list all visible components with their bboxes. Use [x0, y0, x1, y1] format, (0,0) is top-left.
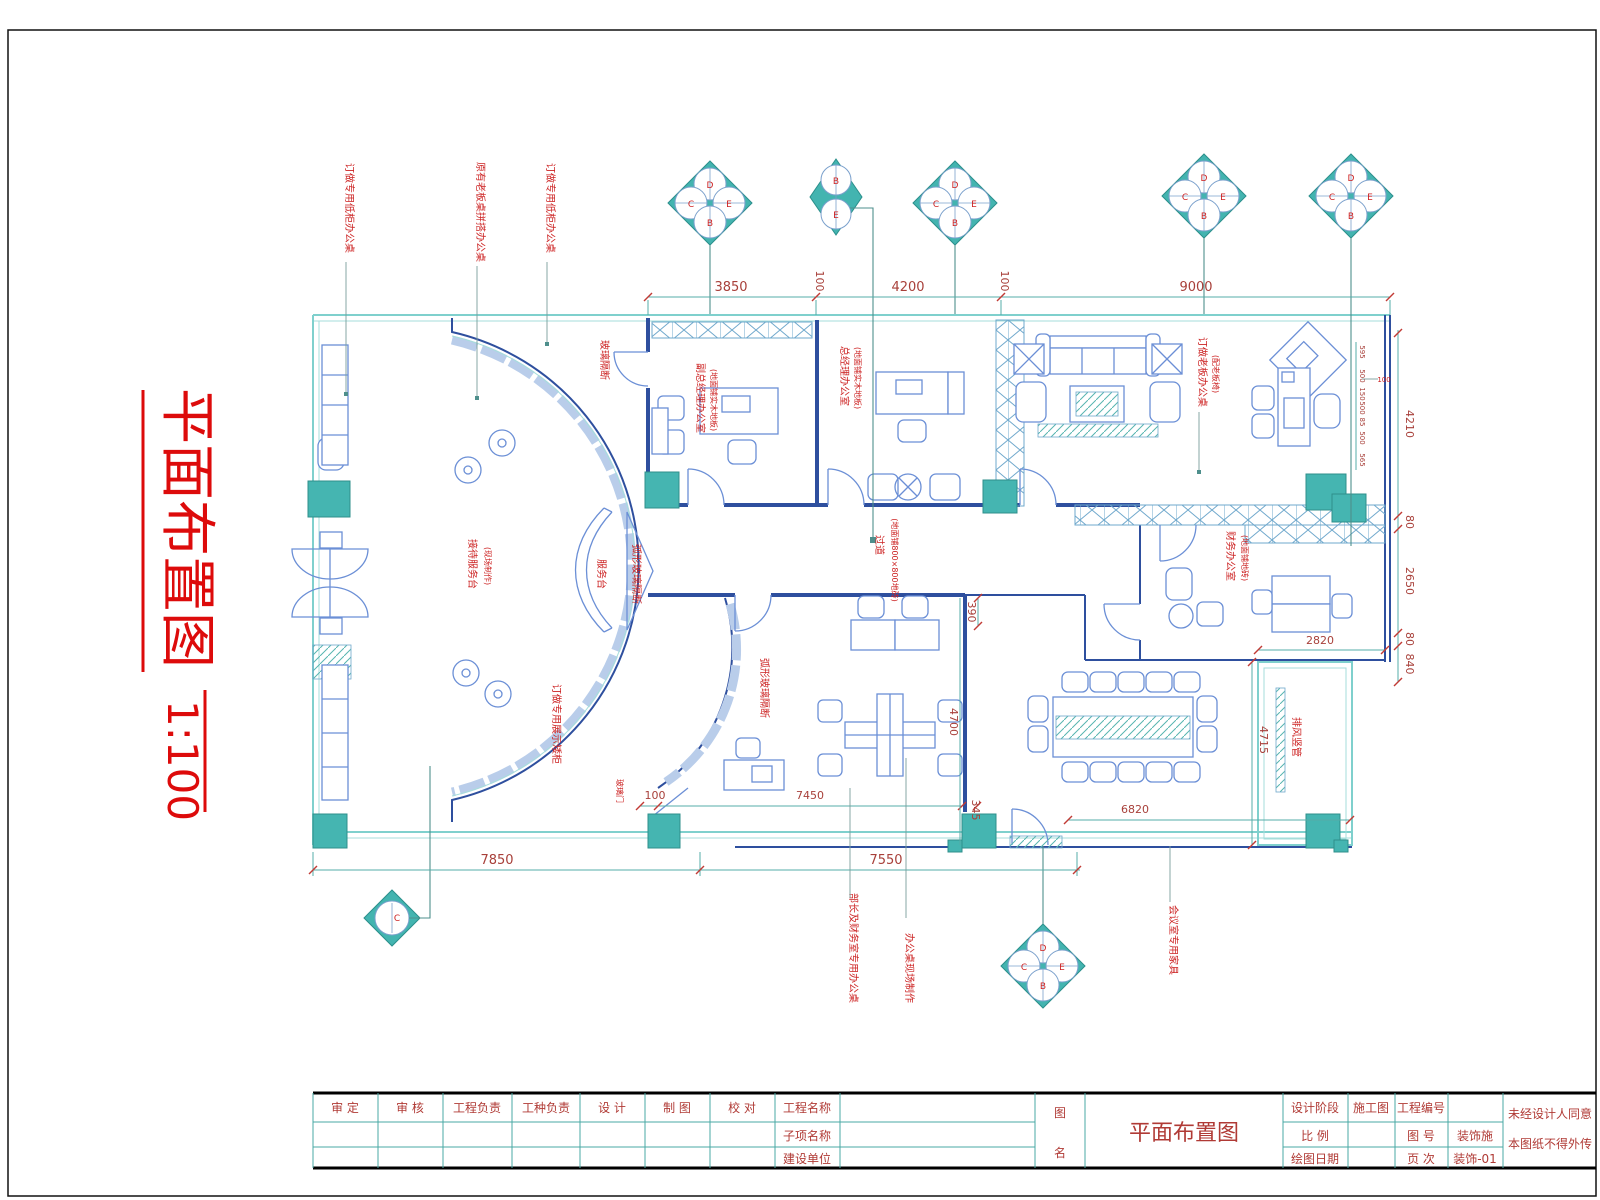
dim-label: 80 — [1403, 515, 1416, 529]
marker-4: D C E B — [1162, 154, 1246, 238]
dim-label: 9000 — [1179, 280, 1212, 295]
titleblock-cell: 装饰-01 — [1453, 1152, 1497, 1166]
dim-label: 80 — [1403, 632, 1416, 646]
marker-letter: C — [394, 914, 400, 924]
annotation: 弧形玻璃隔断 — [630, 544, 643, 604]
floor-plan-svg: 平面布置图 1:100 — [0, 0, 1600, 1200]
dim-label: 4700 — [947, 708, 960, 736]
dim-label: 7450 — [796, 789, 824, 802]
marker-letter: B — [833, 177, 839, 187]
marker-letter: E — [1367, 193, 1373, 203]
annotation: 会议室专用家具 — [1167, 905, 1180, 975]
lounge-sofa-set — [1014, 334, 1182, 437]
marker-letter: D — [952, 181, 959, 191]
annotation: 订做专用低柜办公桌 — [343, 163, 356, 253]
finance-furniture — [1166, 568, 1352, 632]
dim-label: 100 — [998, 271, 1011, 292]
marker-letter: D — [1040, 944, 1047, 954]
title-text: 平面布置图 — [154, 388, 219, 668]
annotation: (地面铺实木地板) — [709, 369, 719, 431]
annotation: 订做专用展示矮柜 — [550, 684, 563, 764]
titleblock-cell: 装饰施 — [1457, 1129, 1493, 1143]
marker-letter: B — [707, 219, 713, 229]
marker-letter: D — [1201, 174, 1208, 184]
drawing-sheet: 平面布置图 1:100 — [0, 0, 1600, 1200]
dim-label: 150 — [1358, 387, 1366, 400]
titleblock-cell: 名 — [1054, 1145, 1066, 1160]
titleblock-cell: 审 定 — [331, 1100, 359, 1115]
marker-letter: E — [833, 211, 839, 221]
marker-3: D C E B — [913, 161, 997, 245]
marker-letter: B — [1348, 212, 1354, 222]
dim-label: 7850 — [480, 853, 513, 868]
annotation: 订做老板办公桌 — [1196, 337, 1209, 407]
annotation: 玻璃门 — [615, 779, 625, 803]
dim-label: 6820 — [1121, 803, 1149, 816]
annotation: 部长及财务室专用办公桌 — [847, 893, 860, 1003]
titleblock-cell: 绘图日期 — [1291, 1151, 1339, 1166]
annotation: 总经理办公室 — [838, 346, 851, 406]
titleblock-cell: 图 号 — [1407, 1129, 1435, 1143]
titleblock-cell: 设计阶段 — [1291, 1100, 1339, 1115]
annotation: 接待服务台 — [466, 539, 479, 589]
dim-label: 4200 — [891, 280, 924, 295]
annotation: 办公桌现场制作 — [903, 933, 916, 1003]
marker-letter: C — [688, 200, 694, 210]
annotation: 原有老板桌拼搭办公桌 — [474, 162, 487, 262]
dim-label: 345 — [969, 800, 982, 821]
corridor-chairs — [868, 474, 960, 500]
titleblock-cell: 设 计 — [598, 1101, 626, 1115]
dim-label: 3850 — [714, 280, 747, 295]
marker-2: B E — [810, 159, 862, 235]
marker-letter: C — [1329, 193, 1335, 203]
dim-label: 4715 — [1257, 726, 1270, 754]
drawing-title: 平面布置图 1:100 — [143, 388, 219, 821]
marker-letter: C — [933, 200, 939, 210]
dim-label: 100 — [645, 789, 666, 802]
annotation: 排风竖管 — [1290, 717, 1303, 757]
dim-label: 390 — [965, 602, 978, 623]
display-cabinets — [322, 345, 348, 800]
annotation: 订做专用低柜办公桌 — [544, 163, 557, 253]
title-block: 审 定 审 核 工程负责 工种负责 设 计 制 图 校 对 工程名称 子项名称 … — [313, 1093, 1596, 1168]
titleblock-cell: 图 — [1054, 1106, 1066, 1120]
dim-label-red: 100 — [1377, 376, 1390, 384]
elevation-markers: D C E B B E D C E B D C E B — [364, 154, 1393, 1008]
annotation: 财务办公室 — [1224, 531, 1237, 581]
marker-6: D C E B — [1001, 924, 1085, 1008]
annotation: 弧形玻璃隔断 — [758, 658, 771, 718]
dim-label: 7550 — [869, 853, 902, 868]
title-scale: 1:100 — [158, 700, 207, 821]
dim-label: 500 — [1358, 369, 1366, 382]
titleblock-cell: 比 例 — [1301, 1129, 1329, 1143]
marker-letter: B — [952, 219, 958, 229]
marker-letter: E — [726, 200, 732, 210]
entrance-revolving-door — [292, 438, 368, 634]
marker-letter: E — [1220, 193, 1226, 203]
marker-letter: C — [1182, 193, 1188, 203]
titleblock-cell: 子项名称 — [783, 1128, 831, 1143]
dim-label: 100 — [813, 271, 826, 292]
marker-letter: E — [1059, 963, 1065, 973]
titleblock-cell: 审 核 — [396, 1100, 424, 1115]
dim-label: 500 — [1358, 431, 1366, 444]
marker-letter: B — [1040, 982, 1046, 992]
dim-label: 840 — [1403, 654, 1416, 675]
titleblock-cell: 校 对 — [728, 1100, 756, 1115]
titleblock-cell: 工程编号 — [1397, 1100, 1445, 1115]
annotation: (配老板椅) — [1211, 355, 1221, 393]
marker-1: D C E B — [668, 161, 752, 245]
executive-desk — [1252, 322, 1346, 446]
titleblock-cell: 页 次 — [1407, 1152, 1435, 1166]
dim-label: 500 — [1358, 401, 1366, 414]
titleblock-cell: 工程名称 — [783, 1100, 831, 1115]
annotation: 玻璃隔断 — [598, 340, 611, 380]
dim-label: 85 — [1358, 418, 1366, 427]
dim-label: 595 — [1358, 345, 1366, 358]
annotation: 服务台 — [595, 559, 608, 589]
meeting-room-furniture — [1028, 672, 1217, 782]
dim-label: 565 — [1358, 453, 1366, 466]
marker-letter: C — [1021, 963, 1027, 973]
office2-furniture — [876, 372, 964, 442]
marker-letter: E — [971, 200, 977, 210]
dim-label: 2820 — [1306, 634, 1334, 647]
titleblock-cell: 施工图 — [1353, 1101, 1389, 1115]
marker-letter: D — [1348, 174, 1355, 184]
dim-label: 2650 — [1403, 567, 1416, 595]
dim-label: 4210 — [1403, 410, 1416, 438]
annotation: 过道 — [873, 535, 886, 555]
annotation: (地面铺地砖) — [1240, 535, 1250, 581]
titleblock-cell: 建设单位 — [783, 1151, 831, 1166]
annotation: (现场制作) — [483, 547, 493, 585]
titleblock-cell: 工程负责 — [453, 1100, 501, 1115]
marker-letter: D — [707, 181, 714, 191]
annotation: (地面铺实木地板) — [853, 347, 863, 409]
drawing-name: 平面布置图 — [1129, 1121, 1239, 1146]
titleblock-notice: 本图纸不得外传 — [1508, 1136, 1592, 1151]
marker-letter: B — [1201, 212, 1207, 222]
titleblock-notice: 未经设计人同意 — [1508, 1106, 1592, 1121]
marker-5: D C E B — [1309, 154, 1393, 238]
annotation: 副总经理办公室 — [694, 363, 707, 433]
annotation: (地面铺800×800地砖) — [890, 518, 900, 601]
titleblock-cell: 工种负责 — [522, 1101, 570, 1115]
titleblock-cell: 制 图 — [663, 1101, 691, 1115]
